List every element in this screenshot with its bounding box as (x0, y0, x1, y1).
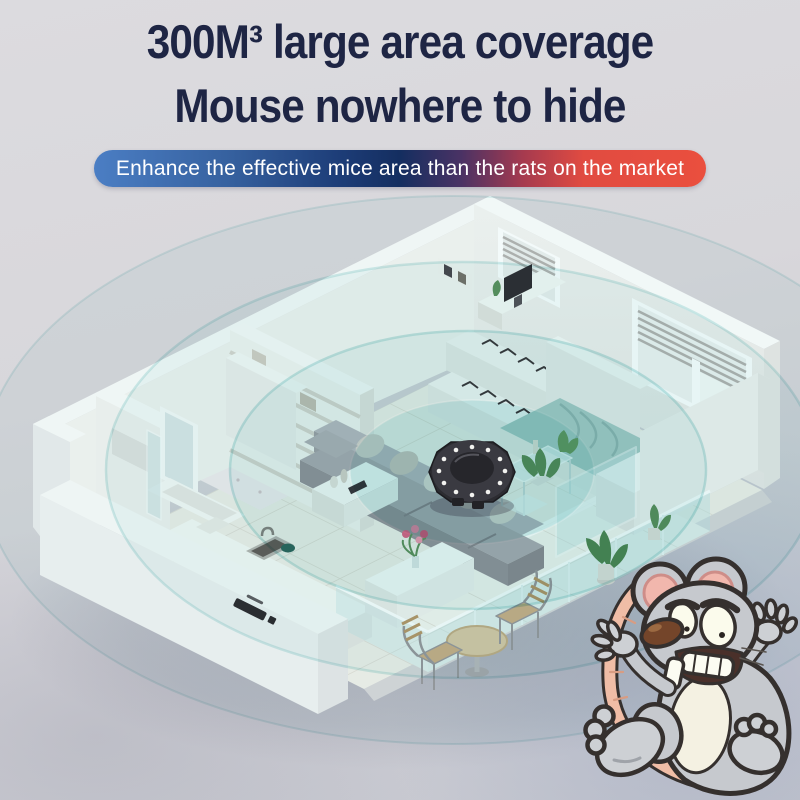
headline: 300M³ large area coverage Mouse nowhere … (0, 10, 800, 138)
claim-banner: Enhance the effective mice area than the… (94, 150, 706, 187)
claim-banner-text: Enhance the effective mice area than the… (116, 157, 684, 181)
headline-line-2: Mouse nowhere to hide (40, 74, 760, 138)
headline-line-1: 300M³ large area coverage (40, 10, 760, 74)
advert-image: 300M³ large area coverage Mouse nowhere … (0, 0, 800, 800)
ultrasonic-device-icon (429, 440, 515, 517)
